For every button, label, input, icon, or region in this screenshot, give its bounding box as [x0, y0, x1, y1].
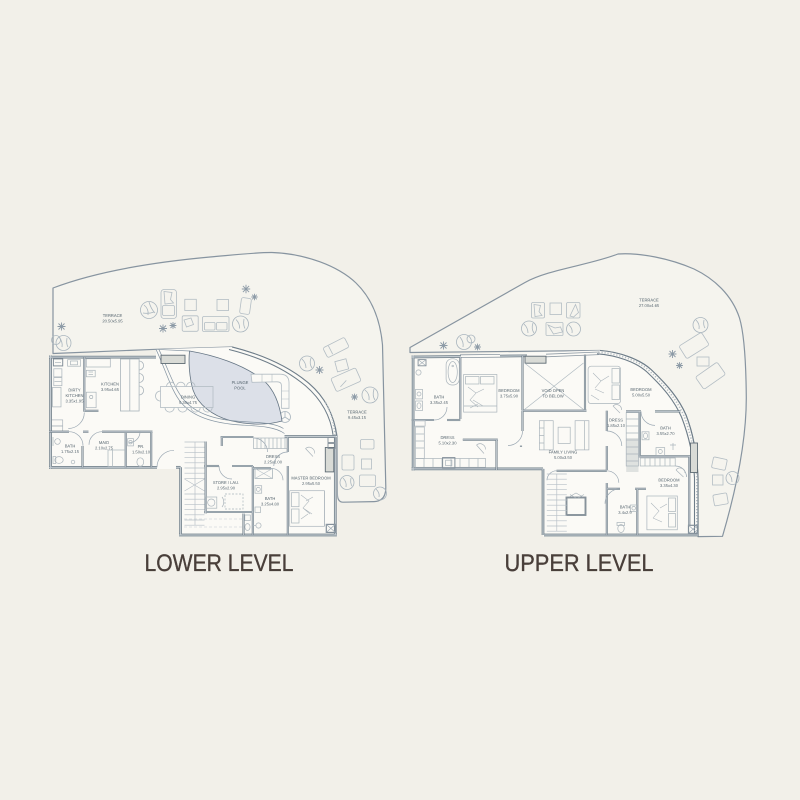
svg-text:5.00x5.50: 5.00x5.50 — [632, 393, 651, 398]
svg-text:BATH: BATH — [660, 426, 671, 431]
svg-text:1.85x2.10: 1.85x2.10 — [607, 423, 626, 428]
svg-text:STORE / LAU.: STORE / LAU. — [213, 480, 240, 485]
svg-text:27.00x4.65: 27.00x4.65 — [639, 303, 660, 308]
svg-text:MAID: MAID — [99, 440, 109, 445]
svg-text:LOWER LEVEL: LOWER LEVEL — [145, 550, 294, 577]
svg-text:DRESS: DRESS — [440, 435, 454, 440]
svg-text:3.35x2.45: 3.35x2.45 — [430, 400, 449, 405]
svg-text:TO BELOW: TO BELOW — [542, 394, 564, 399]
svg-text:TERRACE: TERRACE — [103, 313, 123, 318]
svg-text:PR.: PR. — [138, 444, 145, 449]
svg-text:UPPER LEVEL: UPPER LEVEL — [505, 550, 654, 577]
svg-text:3.35x4.30: 3.35x4.30 — [660, 483, 679, 488]
svg-text:2.95x5.50: 2.95x5.50 — [302, 481, 321, 486]
svg-text:POOL: POOL — [234, 386, 246, 391]
svg-text:KITCHEN: KITCHEN — [101, 382, 119, 387]
svg-text:BEDROOM: BEDROOM — [630, 387, 652, 392]
svg-text:3.35x1.95: 3.35x1.95 — [66, 399, 85, 404]
svg-text:3.25x4.80: 3.25x4.80 — [261, 502, 280, 507]
svg-text:DRESS: DRESS — [266, 454, 280, 459]
svg-text:BATH: BATH — [65, 444, 76, 449]
svg-text:TERRACE: TERRACE — [347, 410, 367, 415]
svg-text:BEDROOM: BEDROOM — [498, 388, 520, 393]
svg-text:20.50x5.95: 20.50x5.95 — [102, 319, 123, 324]
svg-text:DINING: DINING — [181, 395, 195, 400]
svg-text:BATH: BATH — [265, 496, 276, 501]
svg-text:PLUNGE: PLUNGE — [232, 380, 249, 385]
svg-text:BEDROOM: BEDROOM — [658, 478, 680, 483]
svg-text:5.00x3.50: 5.00x3.50 — [554, 455, 573, 460]
svg-text:DIRTY: DIRTY — [68, 388, 80, 393]
svg-text:3.75x5.90: 3.75x5.90 — [500, 394, 519, 399]
svg-text:3.95x4.65: 3.95x4.65 — [101, 387, 120, 392]
svg-text:MASTER BEDROOM: MASTER BEDROOM — [291, 476, 331, 481]
svg-text:1.75x2.15: 1.75x2.15 — [61, 449, 80, 454]
svg-text:3.4x2.9: 3.4x2.9 — [618, 510, 632, 515]
svg-text:2.95x2.90: 2.95x2.90 — [217, 486, 236, 491]
svg-text:DRESS: DRESS — [609, 418, 623, 423]
svg-text:2.10x2.75: 2.10x2.75 — [95, 446, 114, 451]
svg-text:9.45x3.15: 9.45x3.15 — [348, 415, 367, 420]
svg-text:VOID OPEN: VOID OPEN — [542, 388, 565, 393]
svg-text:BATH: BATH — [620, 505, 631, 510]
svg-text:2.25x2.00: 2.25x2.00 — [264, 460, 283, 465]
svg-text:FAMILY LIVING: FAMILY LIVING — [549, 450, 578, 455]
svg-text:5.30x4.75: 5.30x4.75 — [179, 400, 198, 405]
svg-text:BATH: BATH — [434, 395, 445, 400]
svg-text:1.50x2.10: 1.50x2.10 — [132, 450, 151, 455]
svg-text:TERRACE: TERRACE — [639, 298, 659, 303]
svg-text:5.10x2.30: 5.10x2.30 — [439, 441, 458, 446]
svg-text:KITCHEN: KITCHEN — [66, 393, 84, 398]
svg-text:3.55x2.70: 3.55x2.70 — [657, 431, 676, 436]
